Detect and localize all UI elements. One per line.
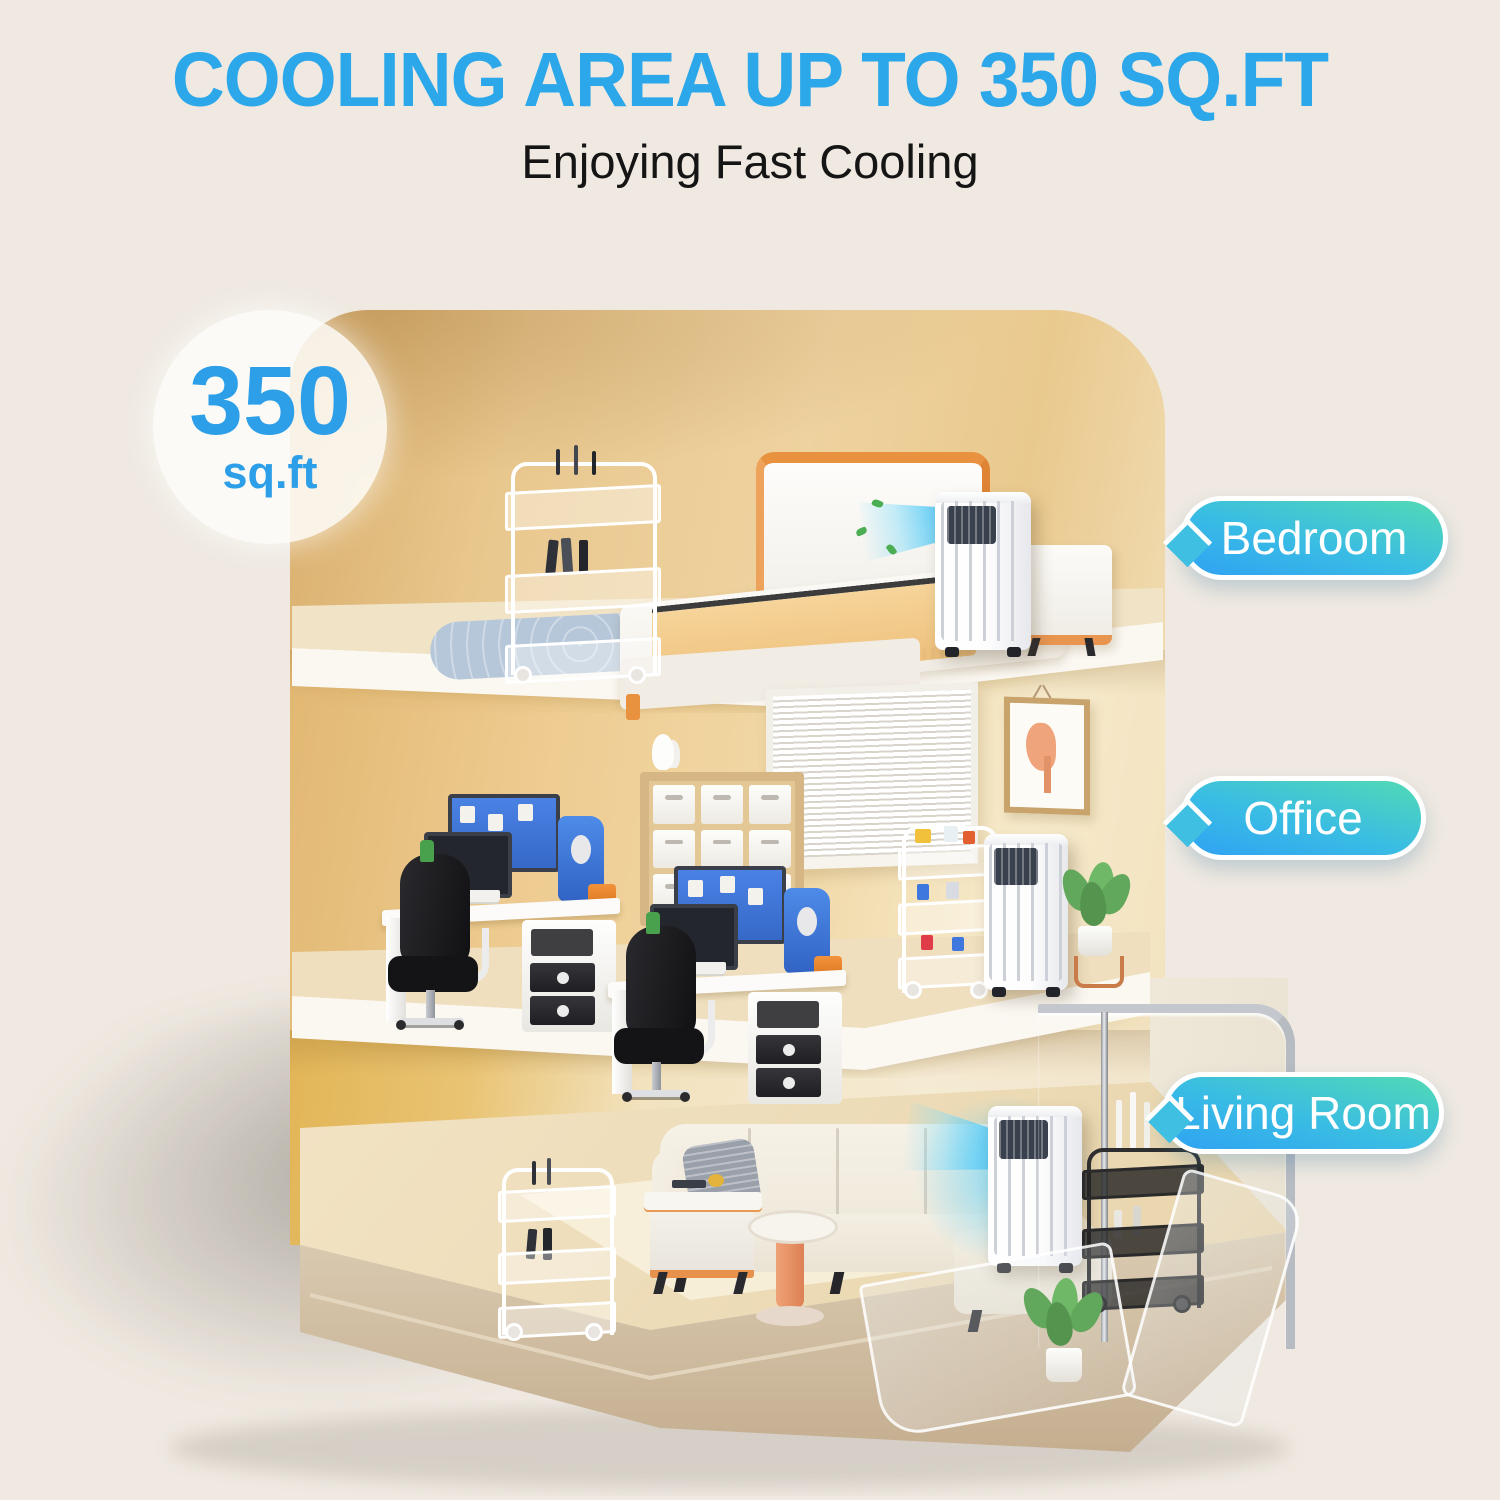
potted-plant-office (1058, 868, 1130, 992)
sticky-note (518, 804, 533, 821)
side-table-top (748, 1210, 838, 1244)
side-table-base (756, 1306, 824, 1326)
ac-vent-grille (947, 506, 997, 544)
office-workstation (382, 788, 622, 1038)
open-shelf (757, 1001, 819, 1028)
drawer (756, 1035, 822, 1064)
ac-vent-grille (994, 848, 1038, 885)
cart-basket (505, 567, 661, 614)
cactus-plant (420, 840, 434, 862)
pen-item (556, 449, 560, 475)
office-chair-seat (614, 1028, 704, 1064)
pen-item (574, 445, 578, 475)
room-label-living-room: Living Room (1162, 1072, 1444, 1154)
chair-caster (396, 1020, 406, 1030)
rolling-cart-living (498, 1168, 610, 1338)
coverage-badge: 350 sq.ft (153, 310, 387, 544)
storage-bin (653, 785, 695, 824)
pen-item (532, 1161, 536, 1185)
chair-caster (622, 1092, 632, 1102)
sticky-note (748, 888, 763, 905)
storage-bin (701, 785, 743, 824)
pen-item (547, 1158, 551, 1185)
badge-unit: sq.ft (223, 447, 318, 499)
bunny-ornament (652, 734, 674, 770)
flamingo-art-leg (1044, 756, 1051, 794)
room-label-bedroom: Bedroom (1180, 496, 1448, 580)
product-infographic: COOLING AREA UP TO 350 SQ.FT Enjoying Fa… (0, 0, 1500, 1500)
drawer (530, 996, 596, 1025)
storage-bin (749, 785, 791, 824)
cart-basket (498, 1247, 616, 1285)
coffee-table (644, 1192, 764, 1294)
office-chair-seat (388, 956, 478, 992)
portable-ac-bedroom (935, 492, 1031, 650)
badge-value: 350 (189, 355, 351, 447)
chair-gas-lift (426, 990, 435, 1020)
books-stack (672, 1180, 706, 1188)
coffee-table-top (644, 1192, 762, 1210)
open-shelf (531, 929, 593, 956)
pot-stand (1074, 956, 1124, 988)
candle-item (1130, 1092, 1136, 1152)
supply-item (946, 882, 959, 899)
pen-item (592, 451, 596, 475)
sticky-note (688, 880, 703, 897)
candle-item (1144, 1102, 1150, 1152)
supply-item (963, 831, 975, 844)
plant-pot (1046, 1348, 1082, 1382)
sticky-note (488, 814, 503, 831)
drawer-unit (748, 992, 842, 1104)
ac-foot (1007, 647, 1021, 657)
supply-item (915, 829, 931, 843)
book-item (579, 540, 588, 574)
supply-item (917, 884, 929, 900)
supply-item (944, 826, 958, 842)
potted-plant-balcony (1018, 1282, 1108, 1422)
rolling-cart-bedroom (505, 462, 655, 680)
coffee-table-body (650, 1212, 754, 1278)
supply-item (952, 937, 964, 951)
room-label-text: Office (1243, 791, 1362, 845)
office-workstation (608, 860, 848, 1110)
portable-ac-office (984, 834, 1068, 990)
bed-foot-orange (626, 694, 640, 720)
ac-foot (945, 647, 959, 657)
drawer (530, 963, 596, 992)
chair-caster (680, 1092, 690, 1102)
chair-caster (454, 1020, 464, 1030)
wall-art-frame (1004, 696, 1090, 815)
gold-kettle (708, 1174, 724, 1187)
chair-gas-lift (652, 1062, 661, 1092)
room-label-text: Living Room (1175, 1086, 1431, 1140)
cart-wheel (505, 1323, 523, 1341)
supply-item (921, 935, 933, 950)
round-side-table (748, 1210, 834, 1328)
cart-basket (498, 1185, 616, 1223)
candle-item (1116, 1100, 1122, 1152)
room-label-office: Office (1180, 776, 1426, 860)
drawer (756, 1068, 822, 1097)
plant-pot (1078, 926, 1112, 956)
drawer-unit (522, 920, 616, 1032)
sofa-seam (836, 1128, 839, 1224)
sticky-note (720, 876, 735, 893)
cactus-plant (646, 912, 660, 934)
sticky-note (460, 806, 475, 823)
ac-foot (992, 987, 1006, 997)
rolling-cart-office (898, 826, 994, 996)
room-label-text: Bedroom (1221, 511, 1408, 565)
